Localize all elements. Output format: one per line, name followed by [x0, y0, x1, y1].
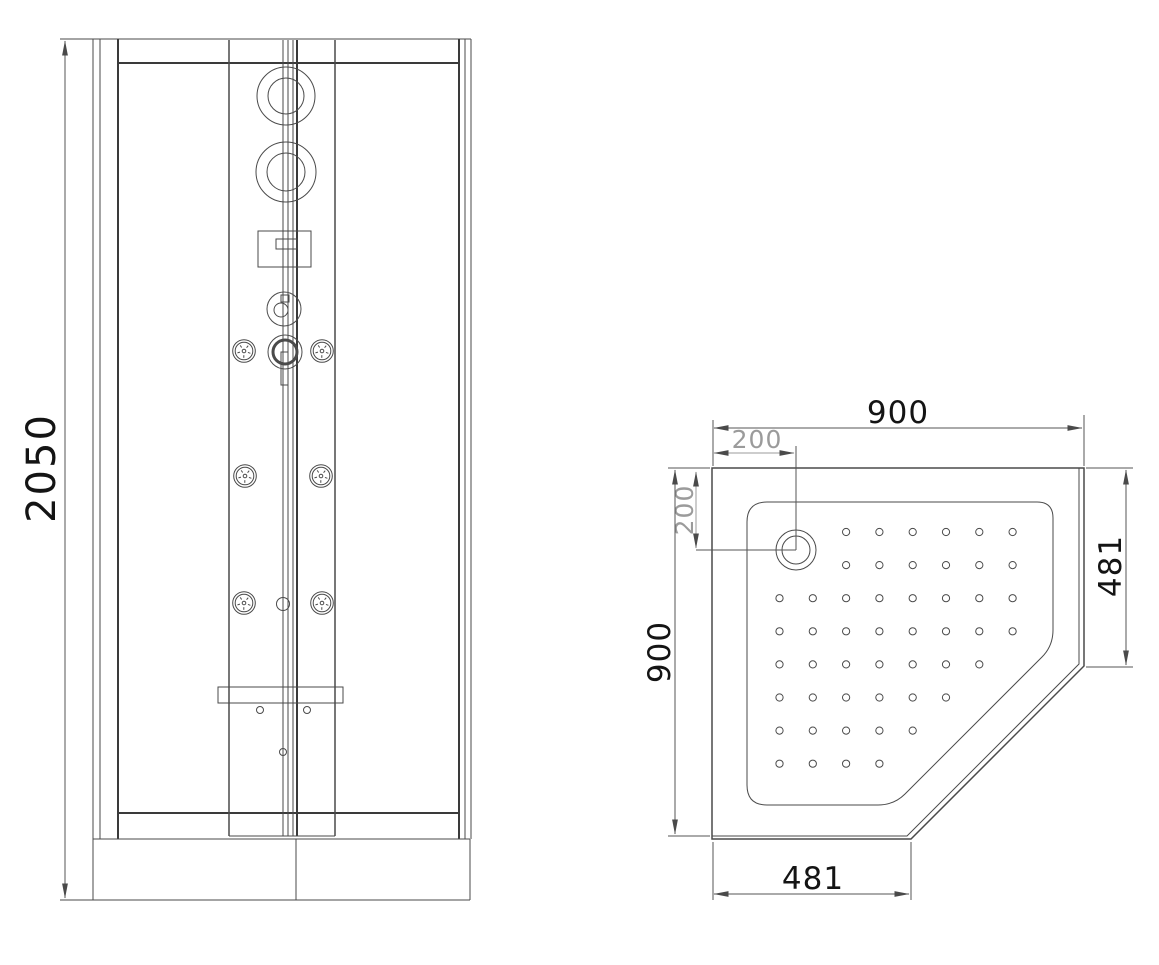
anti-slip-dot: [909, 661, 916, 668]
anti-slip-dot: [942, 661, 949, 668]
overall-height-label: 2050: [19, 413, 65, 523]
drain-offset-vertical-label: 200: [670, 485, 699, 536]
anti-slip-dots: [776, 528, 1016, 767]
anti-slip-dot: [909, 528, 916, 535]
anti-slip-dot: [809, 628, 816, 635]
tray-rim-inner-line: [712, 468, 1079, 836]
anti-slip-dot: [942, 562, 949, 569]
anti-slip-dot: [909, 694, 916, 701]
anti-slip-dot: [876, 628, 883, 635]
anti-slip-dot: [809, 661, 816, 668]
technical-drawing-svg: 2050 900 200: [0, 0, 1159, 965]
anti-slip-dot: [942, 694, 949, 701]
anti-slip-dot: [776, 628, 783, 635]
anti-slip-dot: [976, 661, 983, 668]
anti-slip-dot: [809, 727, 816, 734]
anti-slip-dot: [942, 528, 949, 535]
anti-slip-region: [747, 502, 1053, 805]
anti-slip-dot: [876, 661, 883, 668]
control-panel-box: [258, 231, 311, 267]
cabin-frame: [60, 39, 471, 900]
side-panel-width-label: 481: [1093, 535, 1129, 597]
anti-slip-dot: [843, 628, 850, 635]
door-panels: [229, 40, 335, 836]
dimension-front-panel: 481: [713, 842, 911, 900]
shower-head-second: [256, 142, 316, 202]
tray-outline: [712, 468, 1084, 839]
anti-slip-dot: [976, 628, 983, 635]
anti-slip-dot: [876, 760, 883, 767]
anti-slip-dot: [942, 595, 949, 602]
anti-slip-dot: [909, 628, 916, 635]
anti-slip-dot: [1009, 595, 1016, 602]
anti-slip-dot: [809, 694, 816, 701]
anti-slip-dot: [843, 595, 850, 602]
anti-slip-dot: [776, 661, 783, 668]
anti-slip-dot: [976, 528, 983, 535]
shelf: [218, 687, 343, 756]
anti-slip-dot: [876, 562, 883, 569]
drawing-canvas: 2050 900 200: [0, 0, 1159, 965]
anti-slip-dot: [809, 760, 816, 767]
anti-slip-dot: [876, 595, 883, 602]
anti-slip-dot: [1009, 528, 1016, 535]
front-panel-width-label: 481: [782, 861, 844, 897]
anti-slip-dot: [809, 595, 816, 602]
plan-depth-label: 900: [642, 621, 678, 683]
anti-slip-dot: [776, 760, 783, 767]
dimension-drain-offset-horizontal: 200: [714, 425, 794, 454]
anti-slip-dot: [843, 694, 850, 701]
dimension-overall-height: 2050: [19, 41, 65, 898]
anti-slip-dot: [776, 694, 783, 701]
drain: [696, 446, 816, 570]
anti-slip-dot: [876, 528, 883, 535]
diverter-knob: [267, 292, 301, 326]
anti-slip-dot: [1009, 628, 1016, 635]
anti-slip-dot: [843, 727, 850, 734]
anti-slip-dot: [876, 727, 883, 734]
anti-slip-dot: [776, 595, 783, 602]
dimension-drain-offset-vertical: 200: [670, 472, 699, 548]
tray-plan: 900 200 200 900 481: [642, 395, 1133, 900]
drain-offset-horizontal-label: 200: [732, 425, 783, 454]
anti-slip-dot: [843, 528, 850, 535]
anti-slip-dot: [843, 760, 850, 767]
plan-width-label: 900: [867, 395, 929, 431]
anti-slip-dot: [942, 628, 949, 635]
anti-slip-dot: [976, 595, 983, 602]
anti-slip-dot: [843, 661, 850, 668]
anti-slip-dot: [876, 694, 883, 701]
anti-slip-dot: [776, 727, 783, 734]
dimension-side-panel: 481: [1086, 468, 1133, 667]
anti-slip-dot: [909, 562, 916, 569]
shower-head-top: [257, 67, 315, 125]
front-elevation: 2050: [19, 39, 471, 900]
cabin-base: [93, 839, 470, 900]
anti-slip-dot: [1009, 562, 1016, 569]
anti-slip-dot: [909, 595, 916, 602]
anti-slip-dot: [976, 562, 983, 569]
anti-slip-dot: [909, 727, 916, 734]
anti-slip-dot: [843, 562, 850, 569]
